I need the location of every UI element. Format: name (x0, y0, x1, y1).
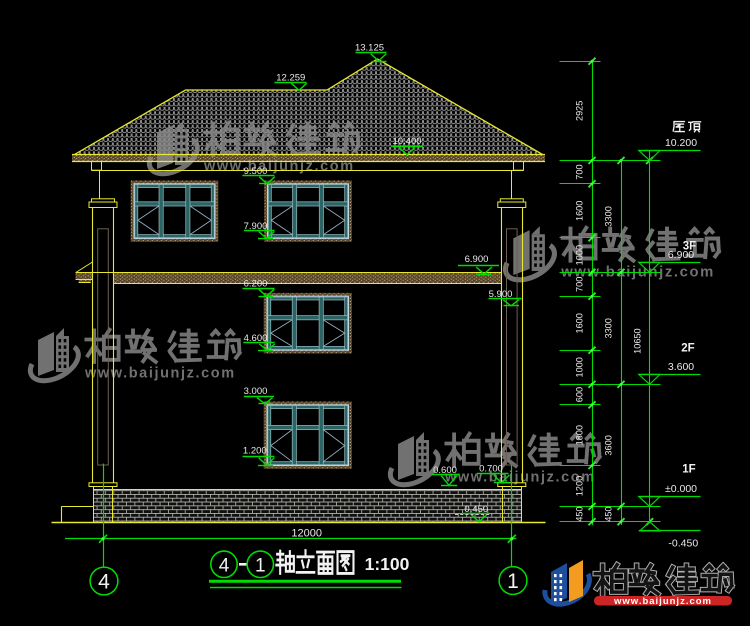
svg-text:1: 1 (507, 570, 519, 593)
svg-text:2925: 2925 (575, 101, 585, 121)
svg-text:1000: 1000 (575, 245, 585, 265)
svg-text:12000: 12000 (291, 528, 322, 540)
svg-text:1600: 1600 (575, 201, 585, 221)
svg-text:1: 1 (255, 556, 266, 577)
svg-text:1.200: 1.200 (243, 446, 267, 457)
svg-text:4: 4 (219, 556, 230, 577)
svg-text:1000: 1000 (575, 357, 585, 377)
svg-text:700: 700 (575, 164, 585, 179)
svg-text:1600: 1600 (575, 313, 585, 333)
svg-text:±0.000: ±0.000 (665, 483, 697, 495)
svg-text:-0.450: -0.450 (668, 537, 698, 549)
svg-text:2F: 2F (681, 343, 694, 355)
svg-text:10.400: 10.400 (392, 136, 421, 147)
svg-text:10650: 10650 (633, 328, 643, 354)
svg-text:3600: 3600 (604, 435, 614, 455)
svg-text:3.000: 3.000 (244, 386, 268, 397)
svg-text:www.baijunjz.com: www.baijunjz.com (84, 366, 236, 382)
svg-text:3.600: 3.600 (668, 361, 694, 373)
svg-text:10.200: 10.200 (665, 137, 697, 149)
svg-text:1:100: 1:100 (365, 554, 410, 574)
svg-text:600: 600 (575, 387, 585, 402)
svg-text:1200: 1200 (575, 476, 585, 496)
svg-text:www.baijunjz.com: www.baijunjz.com (613, 596, 712, 607)
svg-text:3F: 3F (683, 241, 696, 253)
svg-text:3300: 3300 (604, 318, 614, 338)
svg-text:450: 450 (604, 506, 614, 521)
svg-text:450: 450 (575, 506, 585, 521)
svg-text:6.900: 6.900 (465, 254, 489, 265)
svg-text:4: 4 (98, 571, 110, 594)
svg-text:1800: 1800 (575, 425, 585, 445)
svg-text:1F: 1F (682, 464, 695, 476)
svg-text:700: 700 (575, 277, 585, 292)
svg-text:3300: 3300 (604, 206, 614, 226)
